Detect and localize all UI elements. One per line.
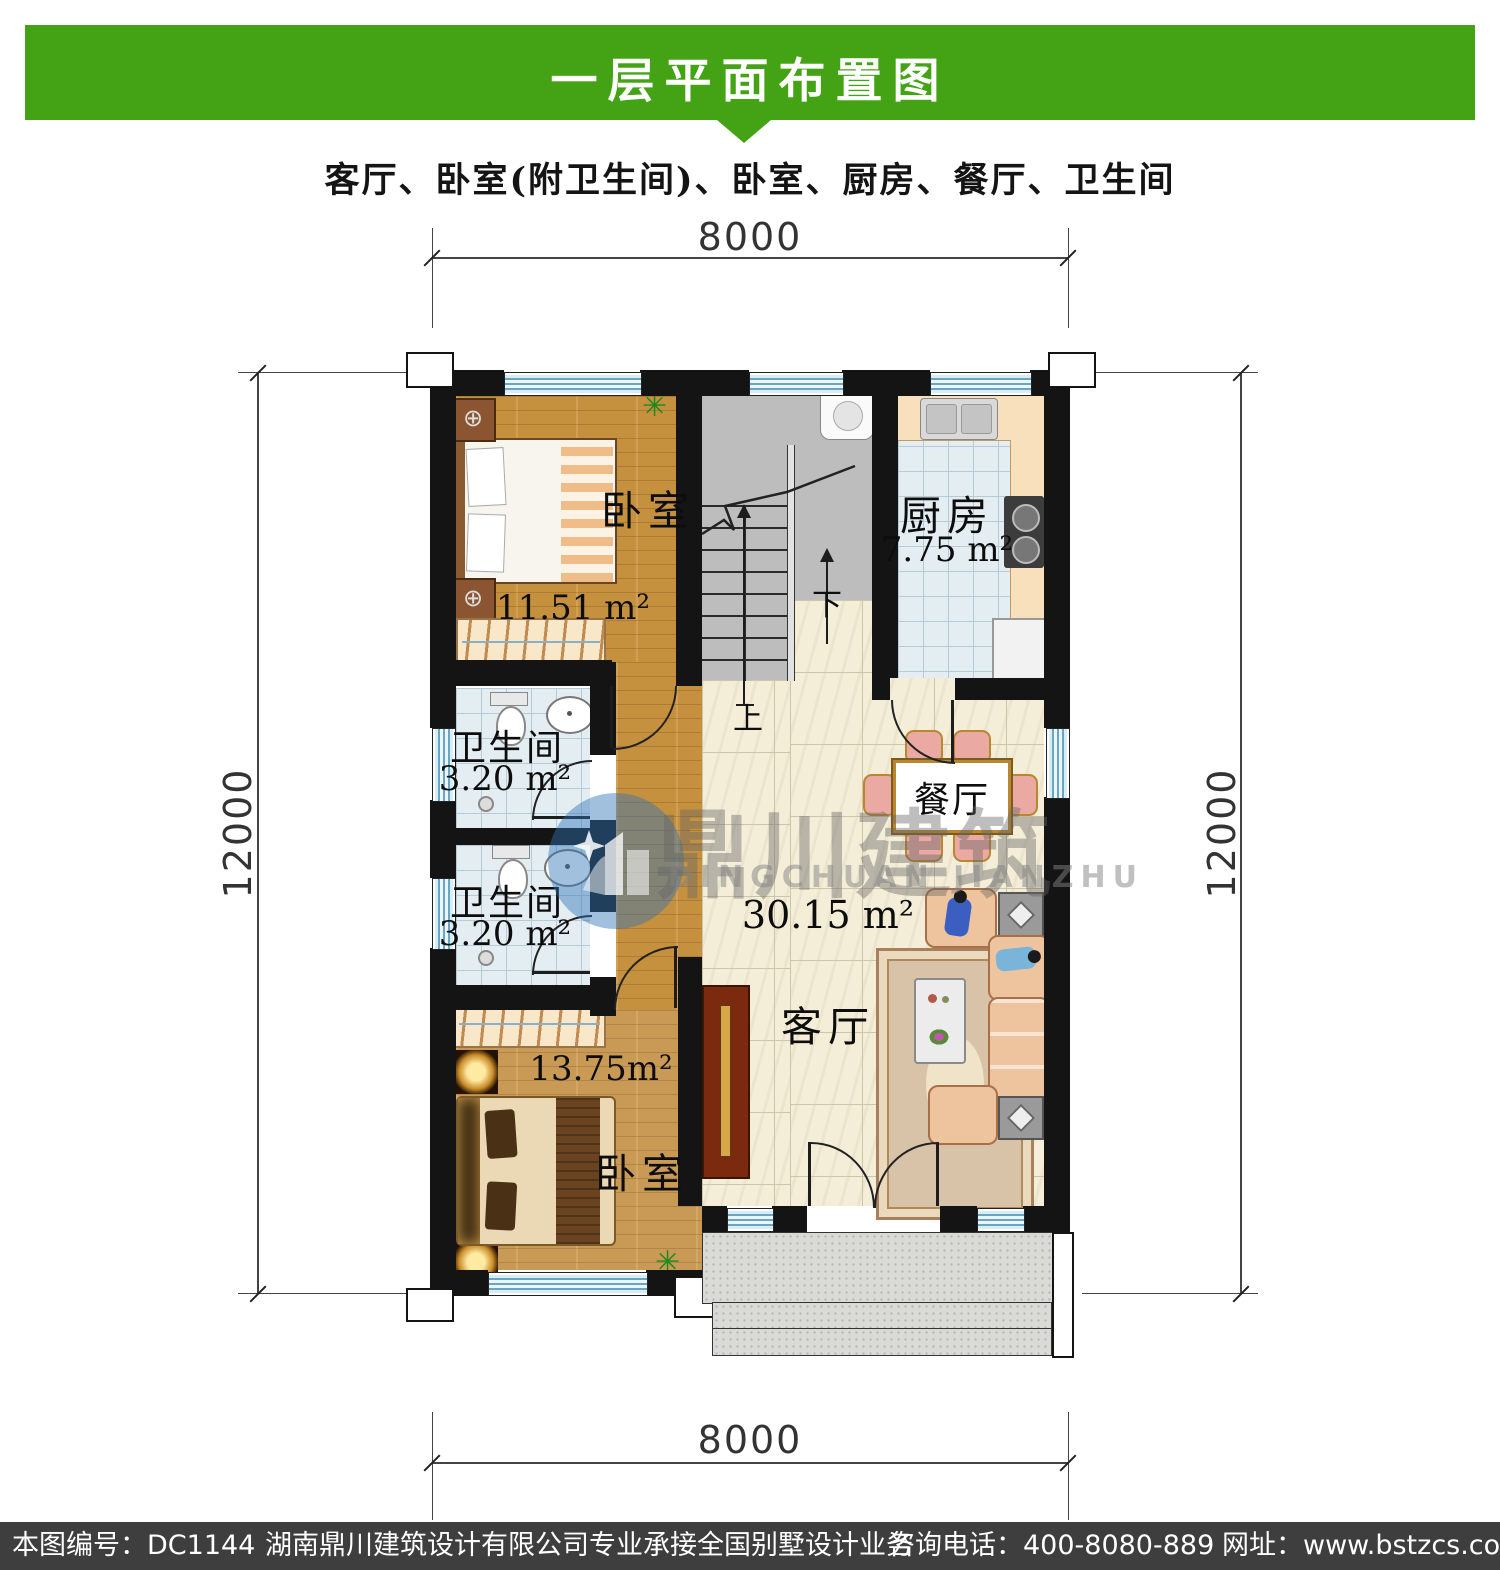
footer-website: 网址：www.bstzcs.com [1222, 1522, 1500, 1570]
window [930, 372, 1032, 396]
dimension-line-left [257, 372, 259, 1293]
table-flowers [928, 1028, 950, 1046]
bed-headboard [455, 440, 465, 582]
table-dish [942, 996, 949, 1003]
window [749, 372, 844, 396]
window [488, 1272, 648, 1296]
bed-runner [556, 1098, 600, 1244]
bedroom-bottom-area: 13.75m² [529, 1049, 672, 1089]
sink-basin [961, 404, 992, 434]
dimension-left: 12000 [216, 768, 260, 899]
window [504, 372, 642, 396]
basin-drain [567, 711, 572, 716]
stair-up-arrow-line [743, 516, 745, 706]
window [727, 1208, 774, 1232]
extension-line [1068, 228, 1069, 328]
extension-line [1068, 1412, 1069, 1520]
wall [430, 800, 456, 878]
dining-chair [953, 730, 991, 764]
toilet-tank [490, 692, 528, 706]
pillow [484, 1109, 517, 1159]
porch-step [712, 1328, 1052, 1356]
window [977, 1208, 1025, 1232]
sink-basin [926, 404, 957, 434]
wall-bath-bottom [430, 985, 616, 1010]
footer-phone: 咨询电话：400-8080-889 [888, 1522, 1214, 1570]
pillow [466, 447, 507, 507]
banner-pointer-triangle [717, 120, 771, 143]
pillow [485, 1181, 517, 1231]
bed-headboard [458, 1098, 480, 1244]
footer-company: 湖南鼎川建筑设计有限公司专业承接全国别墅设计业务 [265, 1522, 913, 1570]
sofa-right [988, 997, 1050, 1099]
toilet-tank [492, 845, 530, 859]
burner [1012, 504, 1040, 532]
extension-line [1082, 1293, 1258, 1294]
dimension-line-bottom [432, 1462, 1068, 1464]
dimension-line-top [432, 257, 1068, 259]
porch-slab [702, 1232, 1062, 1304]
stair-up-arrowhead [737, 504, 751, 518]
wall-bedroom-stairs [676, 396, 702, 686]
nightstand: ⊕ [450, 398, 496, 442]
porch-step [712, 1302, 1052, 1330]
wall [872, 678, 890, 700]
washer-drum [833, 401, 863, 431]
living-label: 客厅 [781, 993, 875, 1053]
burner [1012, 536, 1040, 564]
side-table [998, 1096, 1044, 1140]
bedroom-top-area: 11.51 m² [496, 588, 650, 628]
bedroom-bottom-label: 卧室 [595, 1140, 689, 1200]
wall [1044, 370, 1070, 728]
wall [640, 370, 749, 396]
pillow [466, 513, 506, 572]
wall [772, 1206, 807, 1232]
dimension-bottom: 8000 [698, 1418, 803, 1462]
extension-line [1082, 372, 1258, 373]
armchair [928, 1085, 998, 1145]
fridge-icon [992, 618, 1048, 680]
extension-line [432, 1412, 433, 1520]
kitchen-area: 7.75 m² [881, 530, 1013, 570]
stair-up-label: 上 [733, 694, 763, 738]
room-list-subtitle: 客厅、卧室(附卫生间)、卧室、厨房、餐厅、卫生间 [0, 152, 1500, 203]
stair-down-arrowhead [820, 548, 834, 562]
watermark-en: DINGCHUAN JIANZHU [668, 860, 1144, 895]
bedroom-top-label: 卧室 [601, 477, 695, 537]
corner-post [406, 352, 454, 388]
page-title: 一层平面布置图 [0, 42, 1500, 111]
wall [940, 1206, 977, 1232]
bed-bottom [456, 1096, 616, 1246]
porch-side-rail [1052, 1232, 1074, 1358]
wall [1023, 1206, 1070, 1232]
footer-drawing-no: 本图编号：DC1144 [12, 1522, 255, 1570]
footer-bar: 本图编号：DC1144 湖南鼎川建筑设计有限公司专业承接全国别墅设计业务 咨询电… [0, 1522, 1500, 1570]
tv-screen-slot [720, 1005, 731, 1157]
dimension-line-right [1240, 372, 1242, 1293]
extension-line [238, 1293, 423, 1294]
stair-down-label: 下 [812, 580, 842, 624]
wall [702, 1206, 727, 1232]
stair-break-line [695, 450, 860, 545]
lamp [454, 1050, 498, 1094]
bed-top [453, 438, 617, 584]
wall [842, 370, 930, 396]
extension-line [432, 228, 433, 328]
table-dish [928, 994, 937, 1003]
extension-line [238, 372, 423, 373]
wall-bedroom-bottom [430, 660, 612, 686]
coffee-table [914, 978, 966, 1064]
tv-stand [702, 985, 750, 1179]
wall-kitchen-bottom [955, 678, 1070, 700]
dimension-right: 12000 [1200, 768, 1244, 899]
corner-post [406, 1288, 454, 1322]
nightstand: ⊕ [450, 578, 496, 622]
corner-post [1048, 352, 1096, 388]
watermark-cn: 鼎川建筑 [655, 778, 1055, 917]
dimension-top: 8000 [698, 215, 803, 259]
kitchen-sink [920, 398, 998, 440]
person-lying [995, 946, 1037, 972]
plant-icon: ✳ [642, 392, 667, 422]
